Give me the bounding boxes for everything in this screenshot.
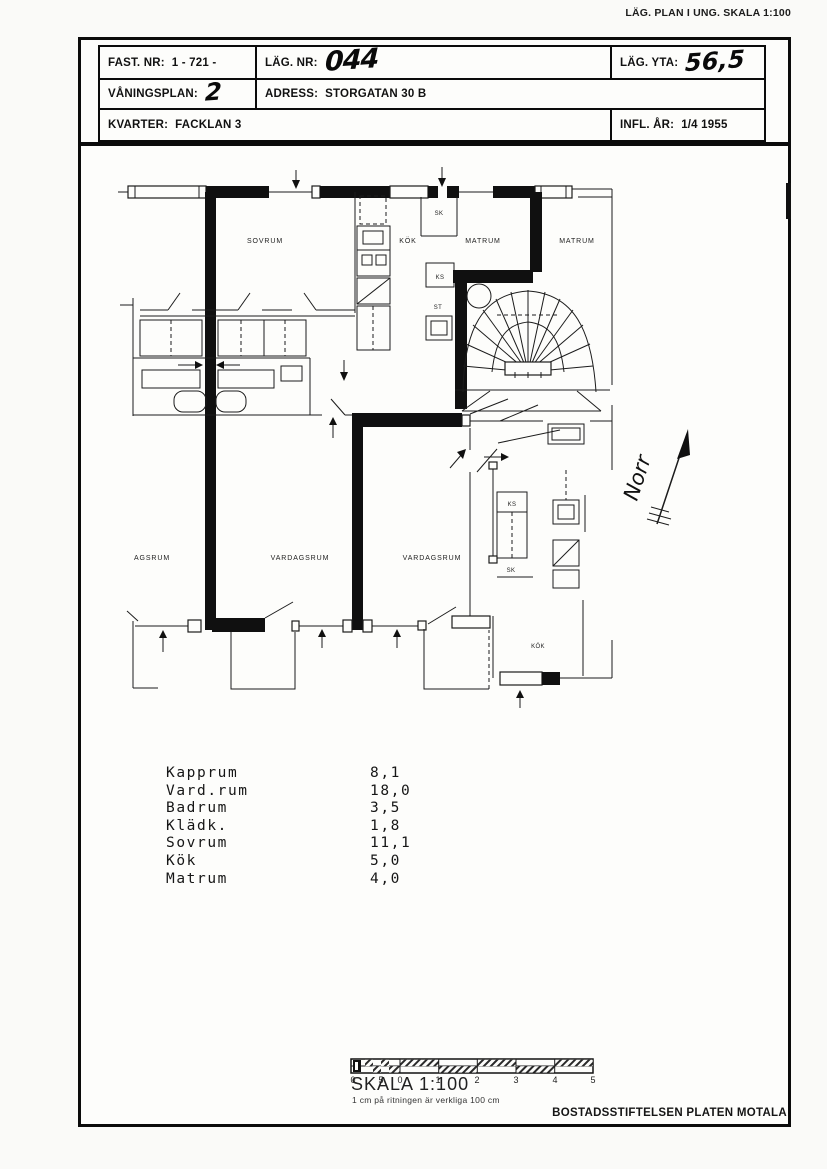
list-item: Klädk. 1,8 <box>166 818 411 836</box>
door-arrow-icon <box>329 417 337 425</box>
floor-plan-drawing: SOVRUM KÖK SK MATRUM MATRUM KS ST AGSRUM… <box>0 0 827 1169</box>
scale-tick: 5 <box>590 1075 595 1085</box>
door-arrow-icon <box>318 629 326 637</box>
room-area: 1,8 <box>370 818 401 836</box>
door-arrow-icon <box>159 630 167 638</box>
list-item: Badrum 3,5 <box>166 800 411 818</box>
list-item: Matrum 4,0 <box>166 871 411 889</box>
door-arrow-icon <box>393 629 401 637</box>
list-item: Kök 5,0 <box>166 853 411 871</box>
room-area: 8,1 <box>370 765 401 783</box>
room-label-agsrum: AGSRUM <box>134 555 170 562</box>
room-area: 18,0 <box>370 783 411 801</box>
scale-tick: 2 <box>474 1075 479 1085</box>
scanned-floorplan-document: { "page": { "corner_label": "LÄG. PLAN I… <box>0 0 827 1169</box>
room-name: Badrum <box>166 800 370 818</box>
room-area: 11,1 <box>370 835 411 853</box>
door-arrow-icon <box>216 361 224 369</box>
room-area: 4,0 <box>370 871 401 889</box>
closet-label-sk: SK <box>435 211 444 217</box>
scan-artifact <box>786 183 791 219</box>
room-label-kok-2: KÖK <box>531 643 545 650</box>
north-label: Norr <box>619 451 656 503</box>
scale-tick: 3 <box>513 1075 518 1085</box>
footer-organization: BOSTADSSTIFTELSEN PLATEN MOTALA <box>552 1107 787 1119</box>
room-label-sovrum: SOVRUM <box>247 238 283 245</box>
door-arrow-icon <box>516 690 524 698</box>
door-arrow-icon <box>195 361 203 369</box>
room-label-kok: KÖK <box>399 237 416 245</box>
room-area: 5,0 <box>370 853 401 871</box>
list-item: Vard.rum 18,0 <box>166 783 411 801</box>
room-name: Klädk. <box>166 818 370 836</box>
scale-subtitle: 1 cm på ritningen är verkliga 100 cm <box>352 1095 500 1105</box>
entry-arrow-icon <box>292 180 300 189</box>
room-name: Vard.rum <box>166 783 370 801</box>
list-item: Sovrum 11,1 <box>166 835 411 853</box>
room-label-vardagsrum: VARDAGSRUM <box>271 555 330 562</box>
room-name: Matrum <box>166 871 370 889</box>
room-area: 3,5 <box>370 800 401 818</box>
closet-label-ks-2: KS <box>508 502 517 508</box>
room-name: Sovrum <box>166 835 370 853</box>
room-name: Kapprum <box>166 765 370 783</box>
bottom-exterior-wall <box>127 602 490 689</box>
balcony <box>231 632 295 689</box>
kitchen-fixtures <box>355 192 390 350</box>
closet-label-sk-2: SK <box>507 568 516 574</box>
sink-icon <box>363 231 383 244</box>
party-wall-left <box>205 192 216 630</box>
room-label-matrum-2: MATRUM <box>559 238 595 245</box>
closet-label-st: ST <box>434 305 442 311</box>
balcony <box>424 629 489 689</box>
list-item: Kapprum 8,1 <box>166 765 411 783</box>
bathroom-area <box>133 358 352 438</box>
closet-row <box>120 293 355 416</box>
lower-walls <box>352 399 508 630</box>
door-arrow-icon <box>340 372 348 381</box>
closet-label-ks: KS <box>436 275 445 281</box>
bathtub-icon <box>174 391 206 412</box>
north-arrow-icon: Norr <box>619 429 690 525</box>
entry-arrow-icon <box>438 178 446 187</box>
room-label-matrum: MATRUM <box>465 238 501 245</box>
door-arrow-icon <box>501 453 509 461</box>
scale-tick: 4 <box>552 1075 557 1085</box>
scale-title: SKALA 1:100 <box>351 1074 469 1095</box>
room-name: Kök <box>166 853 370 871</box>
room-label-vardagsrum-2: VARDAGSRUM <box>403 555 462 562</box>
room-area-list: Kapprum 8,1 Vard.rum 18,0 Badrum 3,5 Klä… <box>166 765 411 888</box>
closet-column <box>421 197 457 340</box>
spiral-staircase <box>455 283 610 411</box>
bathtub-icon <box>216 391 246 412</box>
